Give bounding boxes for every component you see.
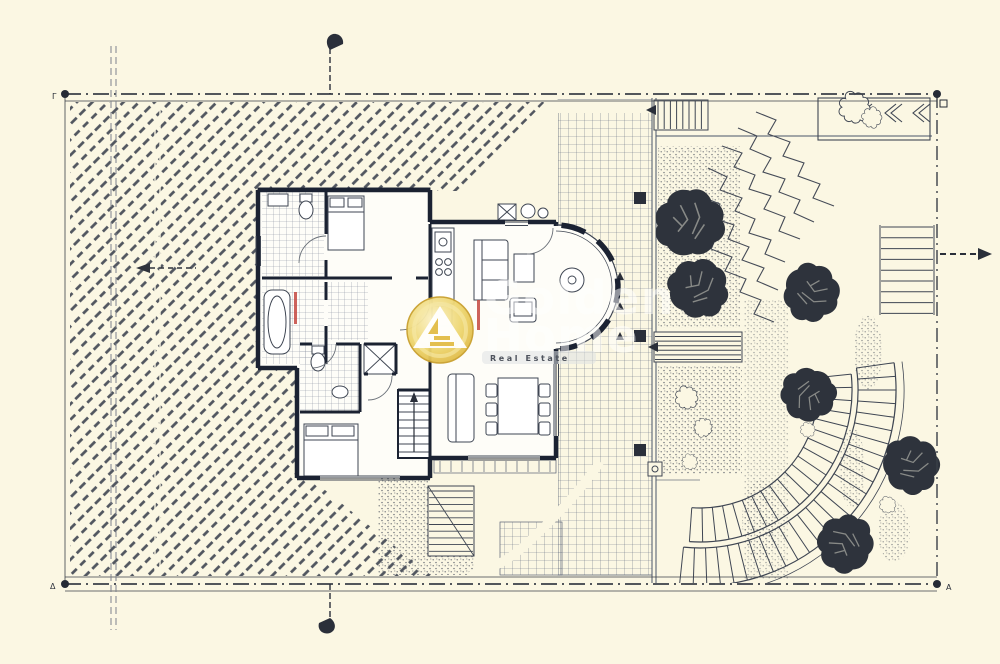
dining-table-icon: [486, 378, 550, 435]
hall-tiles: [328, 282, 368, 340]
corner-label-bottom-left: Δ: [50, 582, 56, 591]
sideboard-icon: [448, 374, 474, 442]
watermark-tagline: Real Estate: [490, 354, 570, 363]
radiator: [294, 292, 297, 324]
wc-tiles: [300, 344, 360, 412]
wardrobe-icon: [364, 344, 396, 374]
site-plan-drawing: Γ Δ A Golden Home Real Estate: [0, 0, 1000, 664]
brand-logo: [407, 297, 473, 363]
indoor-stairs: [398, 390, 430, 458]
garden-stairs-middle: [648, 332, 742, 362]
south-steps: [428, 486, 474, 556]
sink-icon: [332, 386, 348, 398]
radiator: [477, 300, 480, 330]
toilet-icon: [299, 194, 313, 219]
garden-stairs-top: [646, 100, 708, 130]
bed-icon: [328, 196, 364, 250]
bed-icon: [304, 424, 358, 476]
corner-label-bottom-right: A: [946, 583, 952, 592]
sink-icon: [268, 194, 288, 206]
paved-patch: [500, 522, 562, 575]
kitchen-counter: [432, 228, 454, 304]
bathtub-icon: [264, 290, 290, 354]
site-plan-svg: Γ Δ A Golden Home Real Estate: [0, 0, 1000, 664]
corner-label-top-left: Γ: [52, 92, 57, 101]
